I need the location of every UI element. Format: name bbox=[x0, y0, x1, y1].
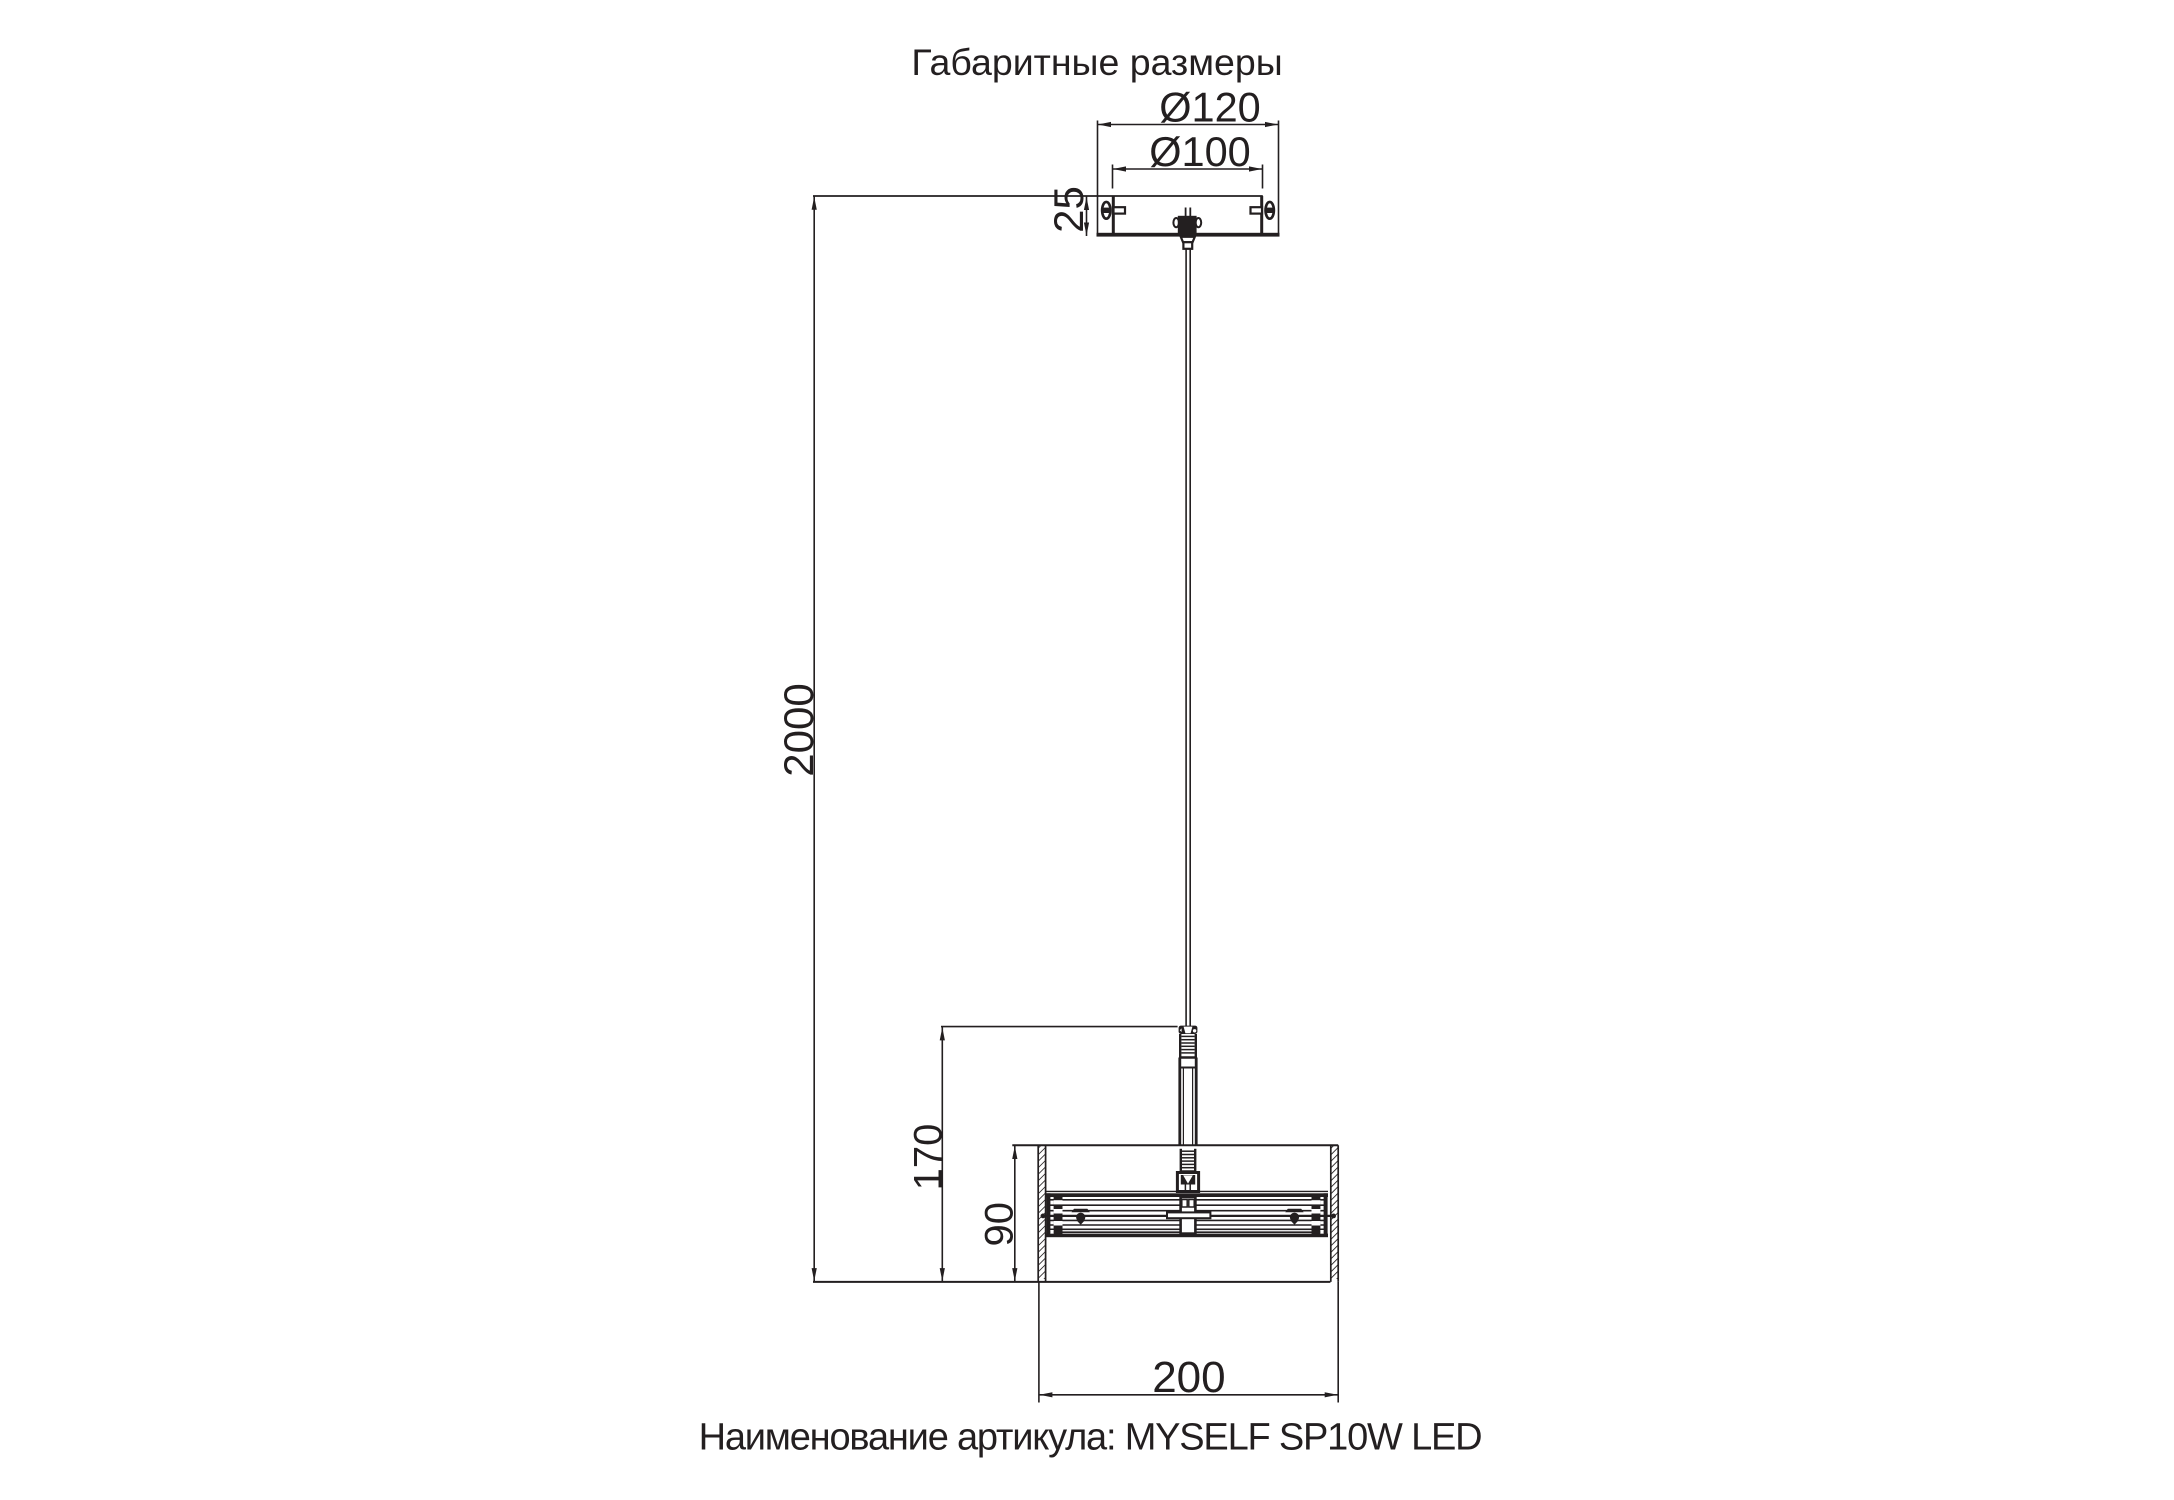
svg-text:Ø100: Ø100 bbox=[1149, 128, 1251, 175]
svg-text:Наименование артикула: MYSELF: Наименование артикула: MYSELF SP10W LED bbox=[699, 1417, 1482, 1459]
svg-text:170: 170 bbox=[907, 1124, 951, 1191]
svg-text:25: 25 bbox=[1045, 186, 1092, 233]
svg-text:2000: 2000 bbox=[775, 683, 822, 776]
svg-text:90: 90 bbox=[978, 1202, 1022, 1247]
svg-text:200: 200 bbox=[1152, 1353, 1225, 1402]
svg-text:Габаритные размеры: Габаритные размеры bbox=[911, 41, 1282, 83]
svg-text:Ø120: Ø120 bbox=[1159, 84, 1261, 131]
